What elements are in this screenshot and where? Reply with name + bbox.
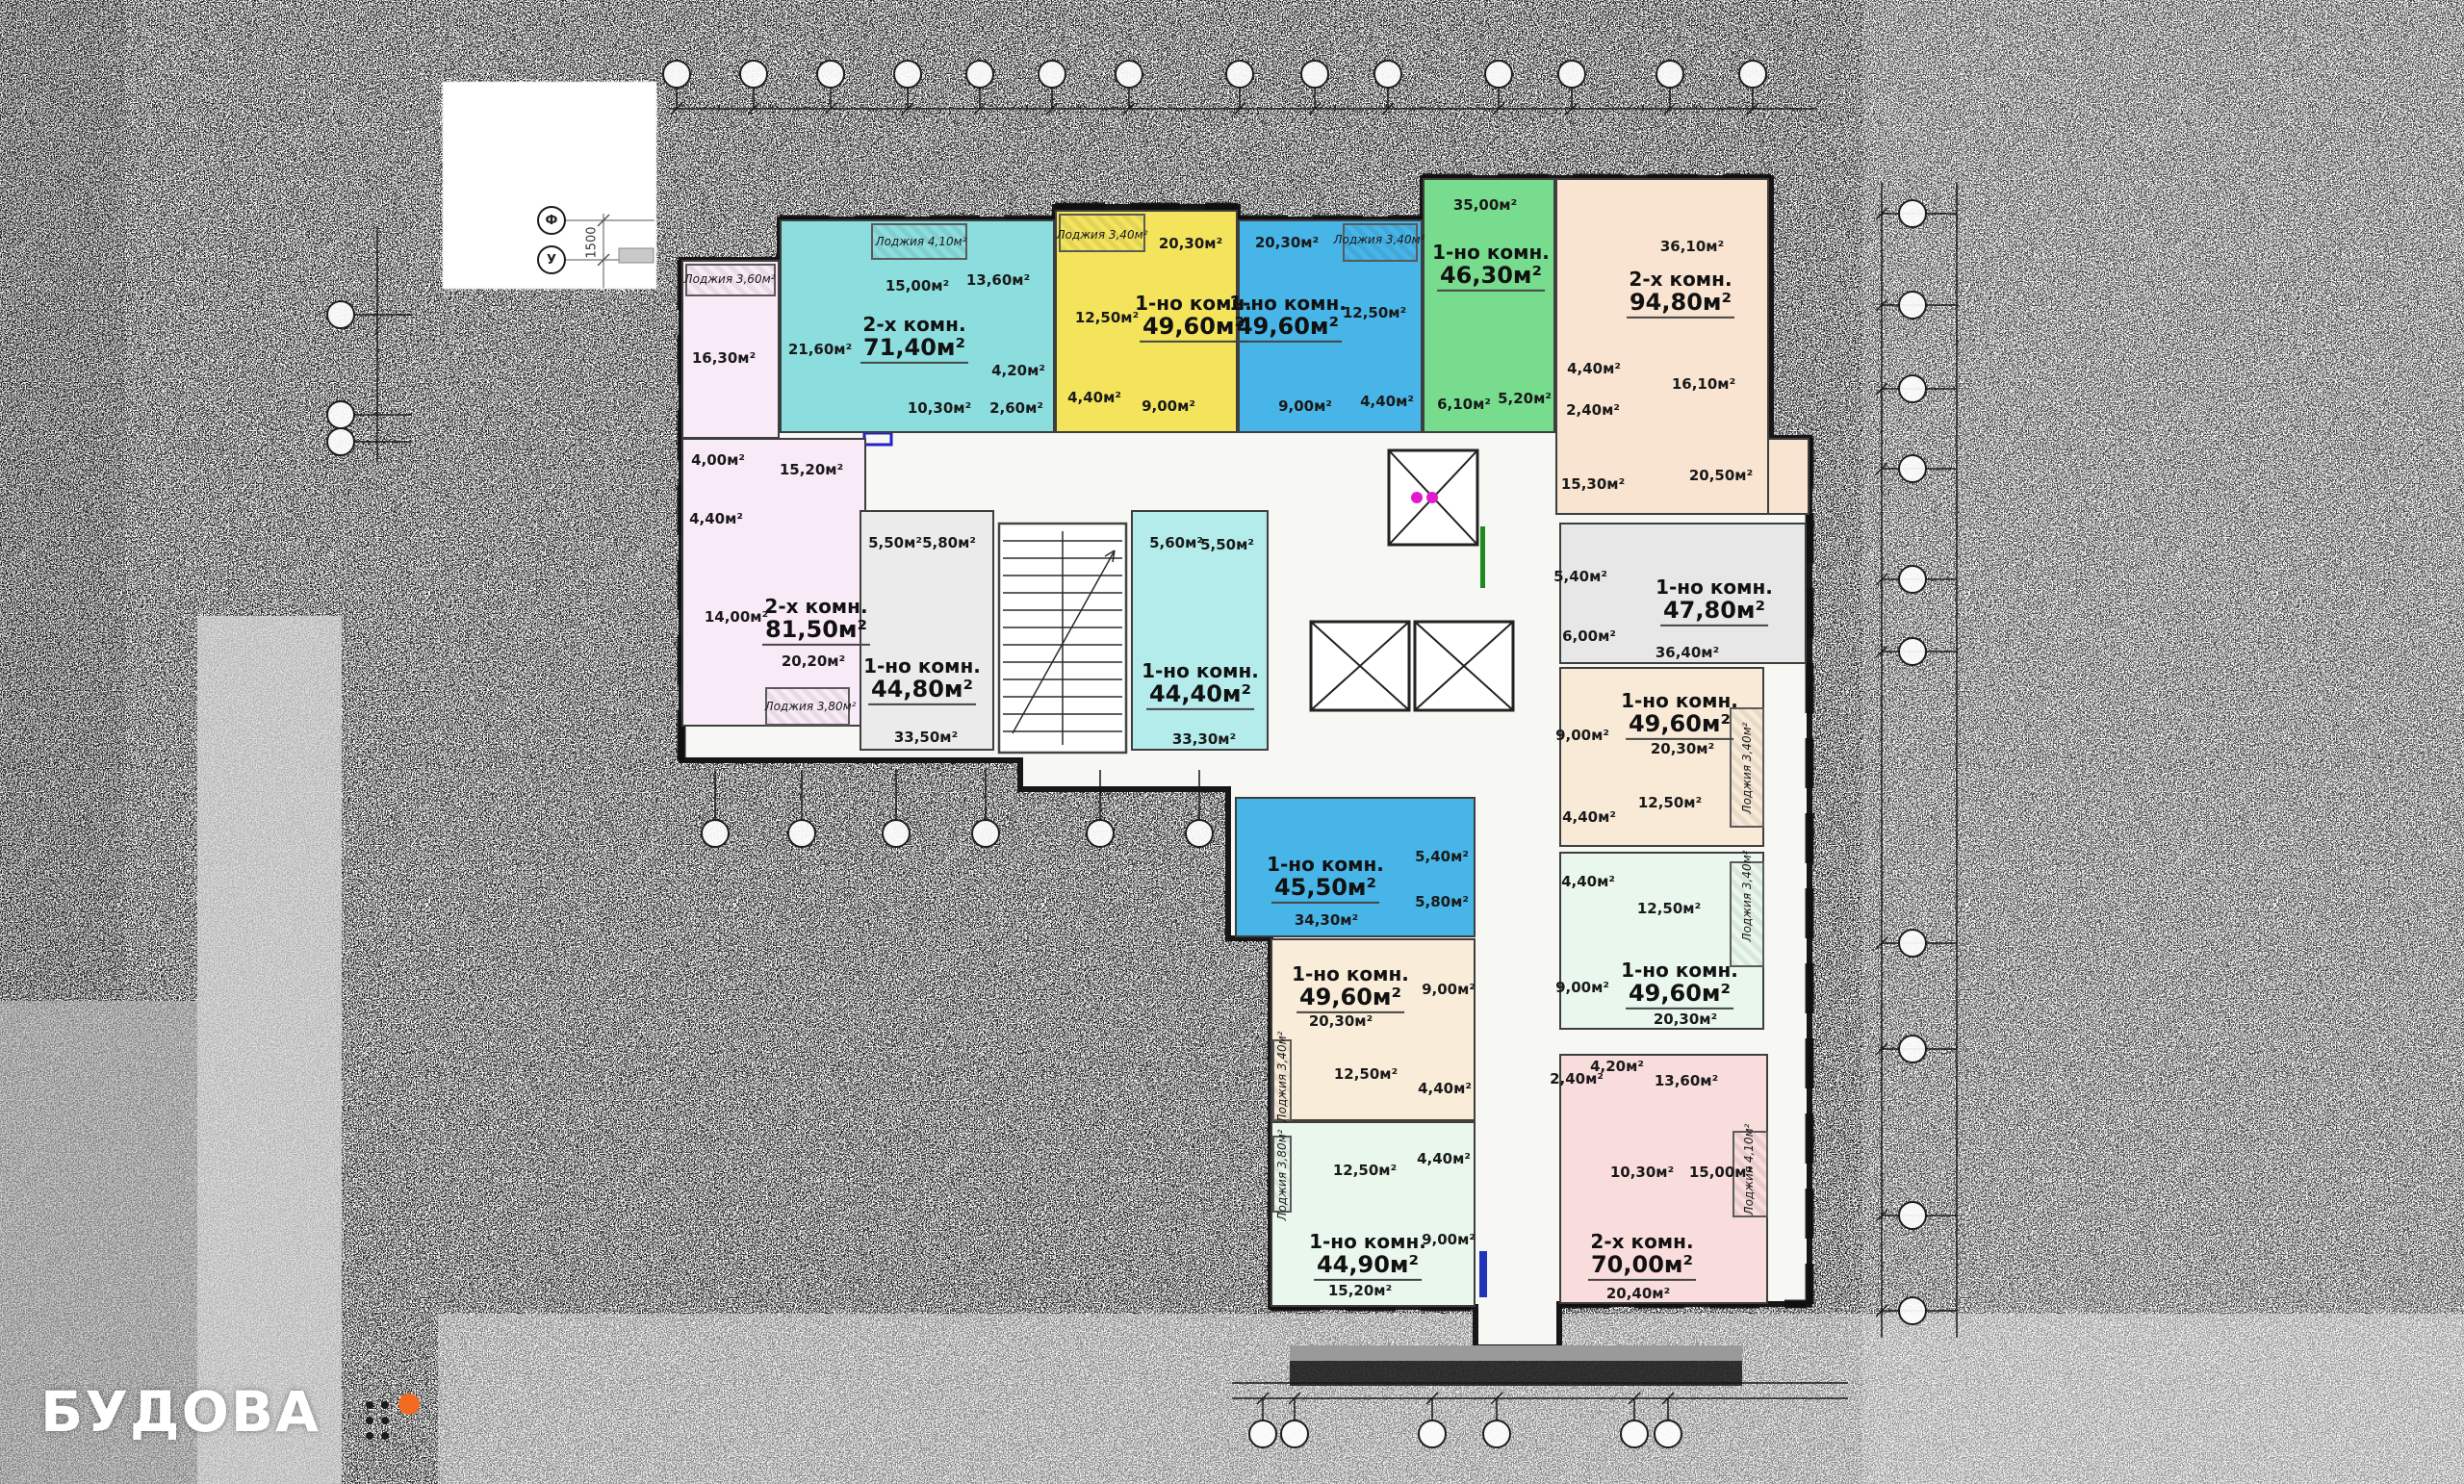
- apartment-a444-label: 1-но комн.44,40м²: [1142, 660, 1259, 710]
- apartment-type-label: 2-х комн.: [762, 596, 870, 617]
- room-area-label: Лоджия 3,40м²: [1334, 233, 1425, 246]
- grid-axis-marker: [1898, 374, 1927, 403]
- apartment-type-label: 1-но комн.: [1432, 242, 1550, 263]
- apartment-a478-label: 1-но комн.47,80м²: [1655, 576, 1773, 627]
- room-area-label: 12,50м²: [1637, 900, 1701, 917]
- apartment-a46-label: 1-но комн.46,30м²: [1432, 242, 1550, 292]
- room-area-label: 36,40м²: [1655, 644, 1719, 661]
- room-area-label: 5,20м²: [1498, 390, 1552, 407]
- apartment-area-label: 94,80м²: [1627, 290, 1734, 319]
- room-area-label: 9,00м²: [1142, 397, 1195, 415]
- logo-dot: [366, 1432, 373, 1440]
- room-area-label: 9,00м²: [1555, 727, 1609, 744]
- apartment-type-label: 1-но комн.: [1292, 963, 1409, 985]
- apartment-type-label: 1-но комн.: [863, 655, 981, 677]
- grid-axis-marker: [1418, 1420, 1447, 1448]
- room-area-label: 33,30м²: [1172, 730, 1236, 748]
- grid-axis-marker: [1115, 60, 1143, 89]
- room-area-label: 5,60м²: [1149, 534, 1203, 551]
- room-area-label: 15,20м²: [780, 461, 843, 478]
- room-area-label: 5,50м²: [868, 534, 922, 551]
- grid-axis-marker: [1655, 60, 1684, 89]
- room-area-label: 16,10м²: [1672, 375, 1735, 393]
- grid-axis-marker: [1898, 199, 1927, 228]
- grid-axis-marker: [1738, 60, 1767, 89]
- room-area-label: 4,40м²: [689, 510, 743, 527]
- apartment-area-label: 49,60м²: [1296, 985, 1404, 1013]
- room-area-label: 5,80м²: [1415, 893, 1469, 910]
- logo-dot: [366, 1417, 373, 1424]
- grid-axis-marker: [1898, 291, 1927, 320]
- apartment-type-label: 1-но комн.: [1309, 1231, 1426, 1252]
- grid-axis-marker: [1557, 60, 1586, 89]
- apartment-a71-label: 2-х комн.71,40м²: [860, 314, 968, 364]
- logo-accent-dot: [398, 1394, 420, 1415]
- grid-axis-marker: [1225, 60, 1254, 89]
- room-area-label: 20,30м²: [1159, 235, 1222, 252]
- room-area-label: 4,40м²: [1562, 808, 1616, 826]
- apartment-a49r2-label: 1-но комн.49,60м²: [1621, 959, 1738, 1010]
- grid-axis-marker: [816, 60, 845, 89]
- grid-axis-marker: [326, 427, 355, 456]
- room-area-label: 20,50м²: [1689, 467, 1753, 484]
- room-area-label: 20,40м²: [1606, 1285, 1670, 1302]
- room-area-label: 35,00м²: [1453, 196, 1517, 214]
- grid-axis-marker: [739, 60, 768, 89]
- room-area-label: 15,00м²: [885, 277, 949, 294]
- logo-dots: [366, 1388, 433, 1446]
- room-area-label: 16,30м²: [692, 349, 756, 367]
- room-area-label: 4,40м²: [1418, 1080, 1472, 1097]
- grid-axis-marker: [701, 819, 730, 848]
- legend-axis-letter: Ф: [546, 214, 558, 228]
- apartment-area-label: 44,90м²: [1314, 1252, 1422, 1281]
- grid-axis-marker: [1898, 1035, 1927, 1063]
- apartment-area-label: 45,50м²: [1271, 875, 1379, 904]
- apartment-type-label: 1-но комн.: [1621, 690, 1738, 711]
- apartment-area-label: 49,60м²: [1234, 314, 1342, 343]
- room-area-label: 4,00м²: [691, 451, 745, 469]
- grid-axis-marker: [1185, 819, 1214, 848]
- apartment-a49r1-label: 1-но комн.49,60м²: [1621, 690, 1738, 740]
- room-area-label: 10,30м²: [908, 399, 971, 417]
- room-area-label: 9,00м²: [1422, 981, 1476, 998]
- apartment-type-label: 2-х комн.: [1627, 269, 1734, 290]
- room-area-label: 9,00м²: [1422, 1231, 1476, 1248]
- grid-axis-marker: [1484, 60, 1513, 89]
- apartment-area-label: 47,80м²: [1660, 598, 1768, 627]
- apartment-area-label: 44,80м²: [868, 677, 976, 705]
- room-area-label: 20,30м²: [1309, 1012, 1373, 1030]
- room-area-label: Лоджия 4,10м²: [876, 235, 967, 248]
- grid-axis-marker: [1620, 1420, 1649, 1448]
- room-area-label: 12,50м²: [1075, 309, 1139, 326]
- room-area-label: 13,60м²: [1655, 1072, 1718, 1089]
- grid-axis-marker: [662, 60, 691, 89]
- grid-axis-marker: [1898, 1296, 1927, 1325]
- apartment-a81[interactable]: [681, 438, 866, 727]
- room-area-label: 20,30м²: [1654, 1011, 1717, 1028]
- grid-axis-marker: [1898, 454, 1927, 483]
- room-area-label: 4,40м²: [1417, 1150, 1471, 1167]
- grid-axis-marker: [1898, 929, 1927, 958]
- legend-axis-marker-u: У: [537, 245, 566, 274]
- apartment-a455-label: 1-но комн.45,50м²: [1267, 854, 1384, 904]
- logo-text: БУДОВА: [40, 1379, 321, 1445]
- room-area-label: 21,60м²: [788, 341, 852, 358]
- room-area-label: Лоджия 3,40м²: [1057, 228, 1148, 242]
- grid-axis-marker: [971, 819, 1000, 848]
- room-area-label: Лоджия 3,60м²: [684, 272, 776, 286]
- logo-dot: [381, 1417, 389, 1424]
- grid-axis-marker: [1300, 60, 1329, 89]
- room-area-label: 9,00м²: [1555, 979, 1609, 996]
- room-area-label: 2,40м²: [1566, 401, 1620, 419]
- room-area-label: Лоджия 3,80м²: [1275, 1130, 1289, 1221]
- room-area-label: 9,00м²: [1278, 397, 1332, 415]
- grid-axis-marker: [1898, 637, 1927, 666]
- grid-axis-marker: [882, 819, 911, 848]
- apartment-type-label: 1-но комн.: [1655, 576, 1773, 598]
- apartment-type-label: 1-но комн.: [1142, 660, 1259, 681]
- room-area-label: 12,50м²: [1343, 304, 1406, 321]
- room-area-label: Лоджия 3,40м²: [1740, 851, 1754, 942]
- apartment-area-label: 49,60м²: [1626, 711, 1733, 740]
- apartment-area-label: 44,40м²: [1146, 681, 1254, 710]
- grid-axis-marker: [893, 60, 922, 89]
- apartment-type-label: 2-х комн.: [860, 314, 968, 335]
- apartment-area-label: 71,40м²: [860, 335, 968, 364]
- apartment-a49b-label: 1-но комн.49,60м²: [1229, 293, 1347, 343]
- room-area-label: 12,50м²: [1333, 1162, 1397, 1179]
- room-area-label: 15,30м²: [1561, 475, 1625, 493]
- apartment-a49c-label: 1-но комн.49,60м²: [1292, 963, 1409, 1013]
- grid-axis-marker: [1654, 1420, 1682, 1448]
- room-area-label: 4,40м²: [1360, 393, 1414, 410]
- room-area-label: 2,60м²: [989, 399, 1043, 417]
- room-area-label: 20,20м²: [782, 652, 845, 670]
- apartment-a94[interactable]: [1555, 178, 1769, 515]
- grid-axis-marker: [1248, 1420, 1277, 1448]
- room-area-label: 6,00м²: [1562, 627, 1616, 645]
- room-area-label: 5,40м²: [1415, 848, 1469, 865]
- room-area-label: 4,40м²: [1561, 873, 1615, 890]
- apartment-a449-label: 1-но комн.44,90м²: [1309, 1231, 1426, 1281]
- room-area-label: Лоджия 3,40м²: [1275, 1032, 1289, 1123]
- room-area-label: 20,30м²: [1255, 234, 1319, 251]
- grid-axis-marker: [326, 400, 355, 429]
- grid-axis-marker: [1373, 60, 1402, 89]
- grid-axis-marker: [787, 819, 816, 848]
- developer-logo: БУДОВА: [40, 1384, 321, 1440]
- room-area-label: 20,30м²: [1651, 740, 1714, 757]
- room-area-label: Лоджия 4,10м²: [1742, 1124, 1756, 1215]
- floor-plan-canvas: 2-х комн.71,40м²Лоджия 4,10м²15,00м²13,6…: [0, 0, 2464, 1484]
- apartment-a70-label: 2-х комн.70,00м²: [1588, 1231, 1696, 1281]
- grid-axis-marker: [965, 60, 994, 89]
- room-area-label: 33,50м²: [894, 729, 958, 746]
- room-area-label: 13,60м²: [966, 271, 1030, 289]
- legend-axis-letter: У: [547, 253, 556, 268]
- room-area-label: 12,50м²: [1638, 794, 1702, 811]
- apartment-area-label: 46,30м²: [1437, 263, 1545, 292]
- room-area-label: 5,80м²: [922, 534, 976, 551]
- legend-axis-marker-f: Ф: [537, 206, 566, 235]
- grid-axis-marker: [1280, 1420, 1309, 1448]
- room-area-label: 5,40м²: [1553, 568, 1607, 585]
- room-area-label: 12,50м²: [1334, 1065, 1398, 1083]
- grid-axis-marker: [1898, 1201, 1927, 1230]
- room-area-label: 15,20м²: [1328, 1282, 1392, 1299]
- room-area-label: 14,00м²: [705, 608, 768, 626]
- grid-axis-marker: [1898, 565, 1927, 594]
- apartment-a81-label: 2-х комн.81,50м²: [762, 596, 870, 646]
- room-area-label: Лоджия 3,40м²: [1740, 723, 1754, 814]
- room-area-label: Лоджия 3,80м²: [765, 700, 857, 713]
- grid-axis-marker: [1086, 819, 1115, 848]
- apartment-a94-label: 2-х комн.94,80м²: [1627, 269, 1734, 319]
- room-area-label: 6,10м²: [1437, 396, 1491, 413]
- apartment-type-label: 2-х комн.: [1588, 1231, 1696, 1252]
- room-area-label: 4,20м²: [991, 362, 1045, 379]
- apartment-type-label: 1-но комн.: [1229, 293, 1347, 314]
- apartment-a94[interactable]: [1767, 438, 1809, 515]
- apartment-type-label: 1-но комн.: [1621, 959, 1738, 981]
- logo-dot: [381, 1432, 389, 1440]
- room-area-label: 4,40м²: [1067, 389, 1121, 406]
- room-area-label: 4,20м²: [1590, 1058, 1644, 1075]
- apartments-layer: 2-х комн.71,40м²Лоджия 4,10м²15,00м²13,6…: [0, 0, 2464, 1484]
- room-area-label: 34,30м²: [1295, 911, 1358, 929]
- apartment-area-label: 70,00м²: [1588, 1252, 1696, 1281]
- grid-axis-marker: [1482, 1420, 1511, 1448]
- logo-dot: [381, 1401, 389, 1409]
- grid-axis-marker: [326, 300, 355, 329]
- logo-dot: [366, 1401, 373, 1409]
- grid-axis-marker: [1038, 60, 1066, 89]
- room-area-label: 36,10м²: [1660, 238, 1724, 255]
- apartment-a448-label: 1-но комн.44,80м²: [863, 655, 981, 705]
- room-area-label: 4,40м²: [1567, 360, 1621, 377]
- legend-dimension-value: 1500: [585, 226, 600, 258]
- apartment-area-label: 81,50м²: [762, 617, 870, 646]
- room-area-label: 5,50м²: [1200, 536, 1254, 553]
- room-area-label: 10,30м²: [1610, 1164, 1674, 1181]
- apartment-area-label: 49,60м²: [1626, 981, 1733, 1010]
- apartment-type-label: 1-но комн.: [1267, 854, 1384, 875]
